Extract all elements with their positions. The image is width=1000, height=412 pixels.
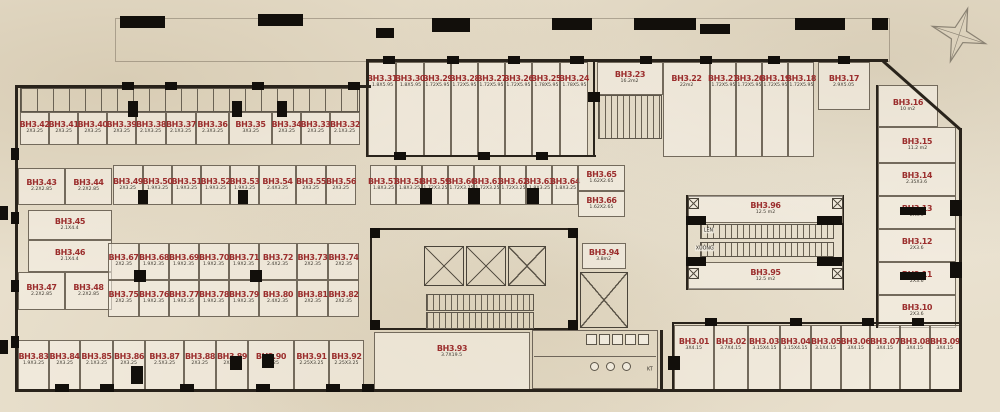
unit-bh3-14: BH3.142.35X3.6 [878, 163, 956, 196]
unit-bh3-75: BH3.752X2.35 [108, 280, 139, 317]
floor-plan: LÊN XUỐNG KT BH3.311.8X5.95BH3.301.8X5.9… [0, 0, 1000, 412]
wall-pier [900, 207, 926, 215]
unit-dimension-label: 2X3.25 [26, 129, 43, 134]
unit-dimension-label: 1.9X3.25 [205, 186, 226, 191]
unit-dimension-label: 2.1X3.25 [86, 361, 107, 366]
wall-pier [100, 384, 114, 392]
unit-bh3-55: BH3.552X3.25 [296, 165, 326, 205]
wall-pier [383, 56, 395, 64]
unit-dimension-label: 2.1X3.25 [334, 129, 355, 134]
unit-dimension-label: 3X4.15 [847, 346, 864, 351]
wall-pier [11, 280, 19, 292]
unit-bh3-09: BH3.093X4.15 [930, 325, 960, 391]
unit-dimension-label: 2.1X4.4 [61, 226, 79, 231]
unit-bh3-88: BH3.882X3.25 [184, 340, 216, 390]
unit-bh3-65: BH3.651.62X2.65 [578, 165, 625, 191]
unit-dimension-label: 1.72X5.95 [711, 83, 735, 88]
unit-dimension-label: 2X3.6 [910, 246, 924, 251]
unit-dimension-label: 1.72X5.95 [506, 83, 530, 88]
unit-dimension-label: 2X3.25 [333, 186, 350, 191]
unit-dimension-label: 3.7X4.15 [720, 346, 741, 351]
escalator-up-hatch [700, 224, 834, 239]
unit-dimension-label: 12.5 m2 [756, 277, 775, 282]
unit-dimension-label: 10 m2 [901, 107, 916, 112]
unit-dimension-label: 2.4X3.25 [267, 186, 288, 191]
unit-bh3-19: BH3.191.72X5.95 [762, 62, 788, 157]
elevator-shaft-icon [688, 198, 699, 209]
unit-dimension-label: 1.9X3.25 [176, 186, 197, 191]
unit-bh3-76: BH3.761.9X2.35 [139, 280, 169, 317]
wall-pier [686, 257, 706, 266]
unit-dimension-label: 1.8X3.25 [398, 186, 419, 191]
unit-dimension-label: 2X3.25 [55, 129, 72, 134]
unit-dimension-label: 1.72X5.95 [763, 83, 787, 88]
unit-bh3-91: BH3.912.25X3.25 [294, 340, 329, 390]
unit-dimension-label: 2X2.35 [335, 262, 352, 267]
wall-pier [256, 384, 270, 392]
unit-bh3-38: BH3.382.1X3.25 [136, 112, 166, 145]
wall-pier [11, 336, 19, 348]
unit-dimension-label: 3.1X4.15 [815, 346, 836, 351]
elevator-shaft-icon [508, 246, 546, 286]
unit-bh3-52: BH3.521.9X3.25 [201, 165, 230, 205]
unit-bh3-64: BH3.641.8X3.25 [552, 165, 578, 205]
unit-bh3-41: BH3.412X3.25 [49, 112, 78, 145]
unit-bh3-94: BH3.943.8m2 [582, 243, 626, 269]
unit-bh3-33: BH3.332X3.25 [301, 112, 330, 145]
unit-bh3-23: BH3.2316.2m2 [597, 62, 663, 95]
elevator-shaft-icon [424, 246, 464, 286]
unit-dimension-label: 11.2 m2 [907, 146, 926, 151]
unit-bh3-36: BH3.362.3X3.25 [196, 112, 229, 145]
wall-pier [326, 384, 340, 392]
escalator-down-label: XUỐNG [695, 246, 715, 252]
unit-dimension-label: 2.5X3.25 [154, 361, 175, 366]
wall-pier [950, 200, 962, 216]
unit-bh3-85: BH3.852.1X3.25 [80, 340, 113, 390]
unit-dimension-label: 2X2.35 [335, 299, 352, 304]
unit-bh3-87: BH3.872.5X3.25 [145, 340, 184, 390]
wall-pier [817, 216, 842, 225]
unit-dimension-label: 1.9X2.35 [203, 262, 224, 267]
wall-pier [258, 14, 303, 26]
unit-dimension-label: 1.72X5.95 [737, 83, 761, 88]
kt-label: KT [647, 367, 653, 373]
wall-pier [138, 190, 148, 204]
toilet-fixture [638, 334, 649, 345]
unit-dimension-label: 1.8X5.95 [371, 83, 392, 88]
wall-pier [0, 206, 8, 220]
unit-dimension-label: 3X4.15 [877, 346, 894, 351]
wall-pier [447, 56, 459, 64]
wall-pier [478, 152, 490, 160]
wall-pier [570, 56, 584, 64]
unit-bh3-16: BH3.1610 m2 [878, 85, 938, 127]
unit-bh3-84: BH3.842X3.25 [49, 340, 80, 390]
wall-segment [876, 85, 878, 328]
unit-dimension-label: 1.78X5.95 [562, 83, 586, 88]
unit-dimension-label: 2X3.6 [910, 312, 924, 317]
stair-hatch-top [598, 95, 662, 139]
wall-segment [660, 389, 962, 392]
wall-pier [120, 16, 165, 28]
unit-dimension-label: 1.78X5.95 [534, 83, 558, 88]
unit-dimension-label: 2.1X3.25 [140, 129, 161, 134]
wall-pier [668, 356, 680, 370]
unit-dimension-label: 2.3X3.25 [202, 129, 223, 134]
unit-dimension-label: 22m2 [680, 83, 693, 88]
unit-bh3-01: BH3.013X4.15 [674, 325, 714, 391]
wall-pier [790, 318, 802, 326]
wall-pier [232, 101, 242, 117]
unit-bh3-54: BH3.542.4X3.25 [259, 165, 296, 205]
wall-pier [376, 28, 394, 38]
unit-bh3-37: BH3.372.1X3.25 [166, 112, 196, 145]
wall-pier [838, 56, 850, 64]
wall-pier [900, 272, 926, 280]
unit-bh3-04: BH3.043.15X4.15 [780, 325, 811, 391]
unit-bh3-31: BH3.311.8X5.95 [368, 62, 396, 157]
unit-bh3-83: BH3.831.9X3.25 [18, 340, 49, 390]
unit-dimension-label: 1.9X2.35 [143, 299, 164, 304]
toilet-fixture [622, 362, 631, 371]
unit-bh3-78: BH3.781.9X2.35 [199, 280, 229, 317]
unit-dimension-label: 2X2.35 [304, 299, 321, 304]
unit-dimension-label: 1.9X2.35 [203, 299, 224, 304]
unit-bh3-92: BH3.922.25X3.25 [329, 340, 364, 390]
unit-dimension-label: 1.62X2.65 [589, 205, 613, 210]
elevator-shaft-icon [688, 268, 699, 279]
unit-bh3-77: BH3.771.9X2.35 [169, 280, 199, 317]
unit-dimension-label: 2X3.25 [192, 361, 209, 366]
wall-pier [277, 101, 287, 117]
unit-bh3-20: BH3.201.72X5.95 [736, 62, 762, 157]
wall-pier [370, 228, 380, 238]
wall-pier [468, 188, 480, 204]
toilet-divider [534, 356, 656, 357]
wall-pier [55, 384, 69, 392]
wall-pier [394, 152, 406, 160]
toilet-fixture [599, 334, 610, 345]
toilet-fixture [586, 334, 597, 345]
small-stall-strip [20, 88, 360, 112]
unit-bh3-06: BH3.063X4.15 [841, 325, 870, 391]
unit-bh3-44: BH3.442.2X2.85 [65, 168, 112, 205]
escalator-down-hatch [700, 242, 834, 257]
unit-dimension-label: 2X3.25 [278, 129, 295, 134]
wall-pier [508, 56, 520, 64]
unit-dimension-label: 2X3.25 [113, 129, 130, 134]
unit-bh3-29: BH3.291.72X5.95 [424, 62, 451, 157]
unit-bh3-48: BH3.482.2X2.85 [65, 272, 112, 310]
unit-dimension-label: 3.15X4.15 [752, 346, 776, 351]
escalator-up-label: LÊN [703, 228, 714, 234]
unit-bh3-46: BH3.462.1X4.4 [28, 240, 112, 272]
unit-bh3-17: BH3.172.9X5.05 [818, 62, 870, 110]
wall-pier [552, 18, 592, 30]
unit-bh3-56: BH3.562X3.25 [326, 165, 356, 205]
wall-pier [128, 101, 138, 117]
unit-dimension-label: 1.8X5.95 [399, 83, 420, 88]
unit-bh3-40: BH3.402X3.25 [78, 112, 107, 145]
unit-dimension-label: 1.9X2.35 [233, 299, 254, 304]
unit-dimension-label: 2.2X2.85 [78, 292, 99, 297]
unit-dimension-label: 2.2X2.85 [31, 292, 52, 297]
wall-segment [660, 330, 663, 391]
unit-dimension-label: 2.4X2.35 [267, 299, 288, 304]
unit-dimension-label: 3.8m2 [597, 257, 612, 262]
wall-pier [768, 56, 780, 64]
unit-bh3-15: BH3.1511.2 m2 [878, 127, 956, 163]
wall-segment [368, 59, 888, 62]
unit-bh3-66: BH3.661.62X2.65 [578, 191, 625, 217]
toilet-fixture [612, 334, 623, 345]
wall-pier [11, 212, 19, 224]
unit-dimension-label: 2X2.35 [115, 262, 132, 267]
unit-dimension-label: 2X3.25 [84, 129, 101, 134]
unit-dimension-label: 3.7X19.5 [441, 353, 462, 358]
wall-pier [527, 188, 539, 204]
wall-pier [432, 18, 470, 32]
wall-pier [180, 384, 194, 392]
unit-bh3-28: BH3.281.72X5.95 [451, 62, 478, 157]
toilet-fixture [590, 362, 599, 371]
unit-bh3-18: BH3.181.72X5.95 [788, 62, 814, 157]
wall-pier [700, 24, 730, 34]
elevator-shaft-icon [580, 272, 628, 328]
wall-pier [238, 190, 248, 204]
unit-dimension-label: 2.25X3.25 [299, 361, 323, 366]
unit-dimension-label: 2.1X3.25 [170, 129, 191, 134]
wall-pier [0, 340, 8, 354]
wall-pier [634, 18, 696, 30]
unit-bh3-07: BH3.073X4.15 [870, 325, 900, 391]
unit-dimension-label: 3X4.15 [907, 346, 924, 351]
unit-bh3-80: BH3.802.4X2.35 [259, 280, 297, 317]
unit-bh3-51: BH3.511.9X3.25 [172, 165, 201, 205]
unit-bh3-26: BH3.261.72X5.95 [505, 62, 532, 157]
unit-bh3-27: BH3.271.72X5.95 [478, 62, 505, 157]
wall-pier [122, 82, 134, 90]
unit-dimension-label: 1.9X2.35 [233, 262, 254, 267]
unit-dimension-label: 2.1X4.4 [61, 257, 79, 262]
unit-dimension-label: 1.72X5.95 [425, 83, 449, 88]
wall-pier [348, 82, 360, 90]
wall-pier [165, 82, 177, 90]
wall-pier [250, 270, 262, 282]
wall-segment [366, 59, 368, 157]
wall-pier [362, 384, 374, 392]
unit-dimension-label: 1.9X2.35 [173, 262, 194, 267]
unit-bh3-70: BH3.701.9X2.35 [199, 243, 229, 280]
unit-dimension-label: 1.8X3.25 [554, 186, 575, 191]
unit-dimension-label: 2.2X2.85 [31, 187, 52, 192]
wall-pier [536, 152, 548, 160]
unit-dimension-label: 1.72X5.95 [452, 83, 476, 88]
unit-dimension-label: 2.35X3.6 [906, 180, 927, 185]
toilet-fixture [625, 334, 636, 345]
unit-bh3-69: BH3.691.9X2.35 [169, 243, 199, 280]
wall-pier [370, 320, 380, 330]
north-arrow-icon [928, 4, 990, 66]
wall-pier [862, 318, 874, 326]
unit-bh3-30: BH3.301.8X5.95 [396, 62, 424, 157]
unit-dimension-label: 2.25X3.25 [334, 361, 358, 366]
wall-pier [950, 262, 962, 278]
unit-bh3-21: BH3.211.72X5.95 [710, 62, 736, 157]
unit-dimension-label: 1.8X3.25 [372, 186, 393, 191]
wall-segment [593, 59, 595, 157]
unit-bh3-47: BH3.472.2X2.85 [18, 272, 65, 310]
unit-dimension-label: 16.2m2 [621, 79, 639, 84]
unit-dimension-label: 1.9X3.25 [23, 361, 44, 366]
wall-pier [705, 318, 717, 326]
unit-dimension-label: 2.9X5.05 [833, 83, 854, 88]
unit-dimension-label: 1.72X5.95 [479, 83, 503, 88]
unit-bh3-32: BH3.322.1X3.25 [330, 112, 360, 145]
unit-dimension-label: 2X3.25 [56, 361, 73, 366]
wall-pier [872, 18, 888, 30]
wall-segment [15, 85, 371, 88]
unit-dimension-label: 2X2.35 [115, 299, 132, 304]
unit-bh3-25: BH3.251.78X5.95 [532, 62, 560, 157]
unit-bh3-42: BH3.422X3.25 [20, 112, 49, 145]
elevator-shaft-icon [832, 198, 843, 209]
unit-bh3-12: BH3.122X3.6 [878, 229, 956, 262]
unit-bh3-45: BH3.452.1X4.4 [28, 210, 112, 240]
elevator-shaft-icon [832, 268, 843, 279]
wall-pier [588, 92, 600, 102]
unit-bh3-02: BH3.023.7X4.15 [714, 325, 748, 391]
unit-bh3-08: BH3.083X4.15 [900, 325, 930, 391]
wall-pier [420, 188, 432, 204]
unit-dimension-label: 3X3.25 [242, 129, 259, 134]
wall-pier [230, 356, 242, 370]
unit-dimension-label: 3X4.15 [937, 346, 954, 351]
unit-bh3-22: BH3.2222m2 [663, 62, 710, 157]
unit-bh3-95: BH3.9512.5 m2 [688, 262, 843, 290]
unit-bh3-81: BH3.812X2.35 [297, 280, 328, 317]
elevator-shaft-icon [466, 246, 506, 286]
wall-pier [700, 56, 712, 64]
unit-dimension-label: 2X3.25 [120, 186, 137, 191]
toilet-fixture [606, 362, 615, 371]
unit-dimension-label: 3X4.15 [686, 346, 703, 351]
wall-pier [817, 257, 842, 266]
wall-pier [134, 270, 146, 282]
unit-dimension-label: 12.5 m2 [756, 210, 775, 215]
unit-bh3-62: BH3.621.72X3.25 [500, 165, 526, 205]
unit-dimension-label: 1.9X2.35 [143, 262, 164, 267]
unit-bh3-57: BH3.571.8X3.25 [370, 165, 396, 205]
unit-bh3-74: BH3.742X2.35 [328, 243, 359, 280]
unit-bh3-73: BH3.732X2.35 [297, 243, 328, 280]
wall-pier [252, 82, 264, 90]
unit-bh3-05: BH3.053.1X4.15 [811, 325, 841, 391]
unit-bh3-82: BH3.822X2.35 [328, 280, 359, 317]
wall-pier [686, 216, 706, 225]
unit-dimension-label: 2.2X2.85 [78, 187, 99, 192]
unit-bh3-93: BH3.933.7X19.5 [374, 332, 530, 390]
wall-pier [568, 320, 578, 330]
unit-bh3-24: BH3.241.78X5.95 [560, 62, 588, 157]
wall-pier [262, 354, 274, 368]
wall-pier [11, 148, 19, 160]
unit-dimension-label: 1.72X5.95 [789, 83, 813, 88]
unit-dimension-label: 2.4X2.35 [267, 262, 288, 267]
unit-bh3-58: BH3.581.8X3.25 [396, 165, 422, 205]
unit-dimension-label: 1.9X3.25 [147, 186, 168, 191]
wall-segment [959, 128, 962, 391]
unit-dimension-label: 2X3.25 [307, 129, 324, 134]
unit-dimension-label: 1.72X3.25 [501, 186, 525, 191]
unit-bh3-43: BH3.432.2X2.85 [18, 168, 65, 205]
wall-pier [912, 318, 924, 326]
unit-dimension-label: 1.62X2.65 [589, 179, 613, 184]
unit-dimension-label: 1.9X2.35 [173, 299, 194, 304]
wall-pier [795, 18, 845, 30]
stair-hatch-core-b [426, 312, 534, 329]
unit-dimension-label: 3.15X4.15 [783, 346, 807, 351]
unit-dimension-label: 2X2.35 [304, 262, 321, 267]
wall-pier [640, 56, 652, 64]
stair-hatch-core-a [426, 294, 534, 311]
unit-bh3-72: BH3.722.4X2.35 [259, 243, 297, 280]
unit-dimension-label: 2X3.25 [303, 186, 320, 191]
wall-pier [568, 228, 578, 238]
unit-bh3-79: BH3.791.9X2.35 [229, 280, 259, 317]
wall-pier [131, 366, 143, 384]
unit-bh3-03: BH3.033.15X4.15 [748, 325, 780, 391]
